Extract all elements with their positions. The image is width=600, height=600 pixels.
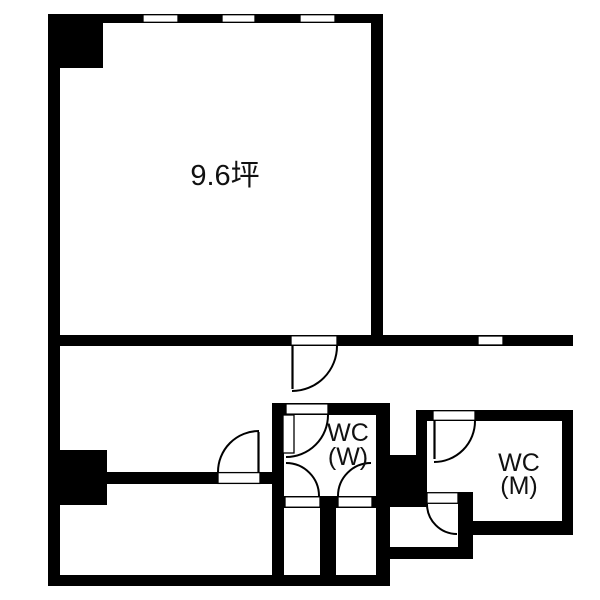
window-middle-wall-icon	[478, 336, 503, 345]
wall-wcm-right	[562, 410, 573, 535]
room-label-main-area: 9.6坪	[190, 159, 259, 192]
window-top-1-icon	[143, 15, 178, 23]
wall-corridor-stub	[260, 472, 272, 484]
wall-wcm-left	[416, 410, 427, 495]
pillar-top-left	[48, 14, 103, 68]
room-label-wcw-line2: (W)	[328, 443, 368, 471]
wall-main-room-right	[371, 14, 383, 346]
window-top-2-icon	[222, 15, 255, 23]
wall-corridor	[107, 472, 218, 484]
wall-stall-divider	[320, 496, 336, 575]
room-label-wcm-line2: (M)	[500, 472, 537, 500]
wall-wcw-right	[376, 403, 390, 586]
wall-wcm-bottom	[473, 521, 573, 535]
window-top-3-icon	[300, 15, 335, 23]
floorplan-background	[0, 0, 600, 600]
floorplan-svg: 9.6坪 WC (W) WC (M)	[0, 0, 600, 600]
wall-wcw-left	[272, 403, 284, 586]
wall-bottom	[48, 575, 388, 586]
floorplan-canvas: 9.6坪 WC (W) WC (M)	[0, 0, 600, 600]
wall-utility-bottom	[388, 547, 473, 559]
pillar-left-middle	[48, 450, 107, 505]
